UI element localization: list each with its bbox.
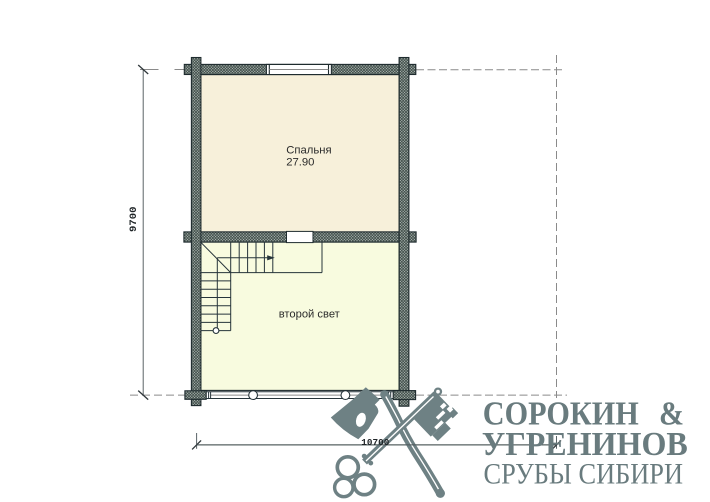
svg-text:УГРЕНИНОВ: УГРЕНИНОВ (482, 426, 688, 463)
svg-text:Спальня: Спальня (286, 144, 331, 156)
svg-text:27.90: 27.90 (286, 157, 314, 169)
svg-text:10700: 10700 (361, 437, 389, 448)
svg-text:9700: 9700 (128, 207, 140, 233)
svg-text:СРУБЫ СИБИРИ: СРУБЫ СИБИРИ (484, 459, 684, 491)
svg-text:второй свет: второй свет (279, 309, 340, 321)
